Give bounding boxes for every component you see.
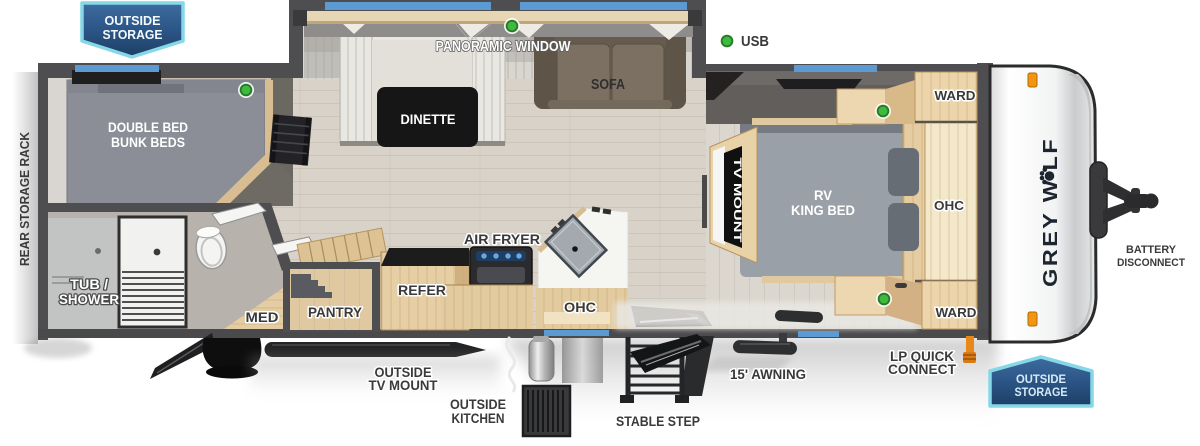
- svg-text:DISCONNECT: DISCONNECT: [1117, 257, 1185, 269]
- svg-text:OUTSIDE: OUTSIDE: [450, 397, 506, 412]
- svg-text:USB: USB: [741, 34, 769, 50]
- svg-text:KING BED: KING BED: [791, 203, 855, 218]
- svg-text:REAR STORAGE RACK: REAR STORAGE RACK: [17, 131, 32, 266]
- svg-text:TV MOUNT: TV MOUNT: [731, 158, 743, 243]
- svg-text:REFER: REFER: [398, 282, 446, 298]
- svg-text:STABLE STEP: STABLE STEP: [616, 413, 700, 429]
- svg-text:DOUBLE BED: DOUBLE BED: [108, 119, 188, 135]
- svg-text:SHOWER: SHOWER: [59, 291, 119, 307]
- svg-text:OHC: OHC: [564, 299, 596, 315]
- svg-text:WARD: WARD: [935, 88, 976, 103]
- svg-text:AIR FRYER: AIR FRYER: [464, 231, 540, 247]
- svg-text:OHC: OHC: [934, 198, 965, 213]
- svg-text:OUTSIDE: OUTSIDE: [105, 13, 161, 28]
- svg-text:MED: MED: [246, 309, 279, 325]
- svg-text:RV: RV: [814, 188, 832, 203]
- svg-text:15' AWNING: 15' AWNING: [730, 367, 806, 382]
- svg-text:DINETTE: DINETTE: [401, 111, 456, 127]
- svg-text:TUB /: TUB /: [70, 276, 108, 292]
- svg-text:KITCHEN: KITCHEN: [452, 411, 505, 426]
- svg-text:OUTSIDE: OUTSIDE: [1016, 374, 1066, 386]
- svg-text:WARD: WARD: [936, 305, 977, 320]
- svg-text:STORAGE: STORAGE: [1015, 387, 1068, 399]
- svg-text:BUNK BEDS: BUNK BEDS: [111, 134, 185, 150]
- svg-text:CONNECT: CONNECT: [888, 362, 957, 377]
- svg-text:BATTERY: BATTERY: [1126, 244, 1177, 256]
- svg-text:PANORAMIC WINDOW: PANORAMIC WINDOW: [436, 39, 571, 55]
- svg-text:PANTRY: PANTRY: [308, 304, 363, 320]
- svg-text:STORAGE: STORAGE: [103, 27, 163, 42]
- svg-text:TV MOUNT: TV MOUNT: [369, 378, 439, 393]
- svg-text:GREY W LF: GREY W LF: [1040, 137, 1062, 287]
- svg-text:SOFA: SOFA: [591, 77, 625, 93]
